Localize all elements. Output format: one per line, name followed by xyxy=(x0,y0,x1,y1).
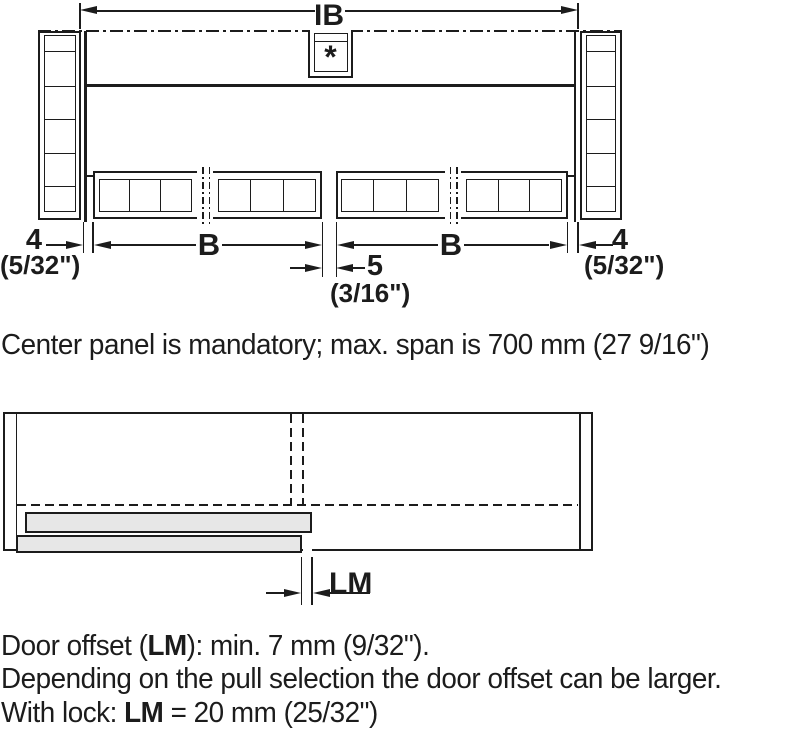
door-panel-a2-glazing xyxy=(218,179,316,212)
front-edge-right xyxy=(568,175,575,177)
door-break-line xyxy=(209,167,211,224)
panel-cell xyxy=(45,120,75,154)
ib-arrowhead-right-icon xyxy=(561,6,578,14)
door-cell xyxy=(529,180,561,211)
panel-cell xyxy=(587,52,615,87)
note-text: Door offset ( xyxy=(1,630,147,662)
ib-dim-line-left xyxy=(96,10,315,12)
panel-cell xyxy=(45,187,75,214)
center-gap-leader-left xyxy=(290,267,305,269)
door-panel-b2-glazing xyxy=(466,179,562,212)
lm-witness-line xyxy=(311,557,313,605)
center-panel: * xyxy=(314,33,348,72)
hidden-edge-line xyxy=(17,504,578,506)
door-cell xyxy=(498,180,530,211)
ib-dim-label: IB xyxy=(313,1,345,31)
front-sliding-door xyxy=(16,535,302,553)
door-cell xyxy=(219,180,250,211)
note-text: = 20 mm (25/32") xyxy=(163,697,377,729)
lm-witness-line xyxy=(301,557,303,605)
right-reveal-inch-label: (5/32") xyxy=(584,252,664,278)
b-left-arrowhead-icon xyxy=(305,241,322,249)
rear-sliding-door xyxy=(25,512,312,533)
panel-cell xyxy=(587,154,615,187)
panel-cell xyxy=(45,87,75,120)
b-right-arrowhead-icon xyxy=(550,241,567,249)
ib-arrowhead-left-icon xyxy=(80,6,97,14)
note-text: With lock: xyxy=(1,697,124,729)
ib-dim-line-right xyxy=(345,10,561,12)
b-right-dim-line xyxy=(353,244,438,246)
cabinet-left-wall xyxy=(84,31,87,222)
note-text: ): min. 7 mm (9/32"). xyxy=(187,630,430,662)
door-break-line xyxy=(450,167,452,224)
b-right-dim-label: B xyxy=(438,229,464,260)
door-cell xyxy=(467,180,498,211)
left-wall-inner-line xyxy=(16,414,18,536)
door-cell xyxy=(283,180,315,211)
door-cell xyxy=(160,180,191,211)
right-reveal-arrowhead-icon xyxy=(579,241,596,249)
lm-arrowhead-icon xyxy=(313,589,330,597)
door-cell xyxy=(406,180,438,211)
bottom-edge-notch xyxy=(303,549,312,555)
center-panel-hidden-line xyxy=(290,414,292,506)
b-left-dim-label: B xyxy=(196,229,222,260)
door-break-line xyxy=(202,167,204,224)
b-left-arrowhead-icon xyxy=(94,241,111,249)
lm-dim-label: LM xyxy=(329,569,373,599)
panel-cell xyxy=(45,36,75,52)
witness-line xyxy=(567,222,569,253)
lm-bold: LM xyxy=(147,630,186,662)
cabinet-right-wall xyxy=(574,31,577,222)
door-cell xyxy=(342,180,373,211)
center-gap-inch-label: (3/16") xyxy=(330,280,406,306)
center-gap-arrowhead-icon xyxy=(305,264,322,272)
center-gap-mm-label: 5 xyxy=(364,252,386,281)
door-cell xyxy=(250,180,282,211)
b-right-arrowhead-icon xyxy=(337,241,354,249)
center-gap-arrowhead-icon xyxy=(336,264,353,272)
cabinet-back-wall xyxy=(86,84,574,87)
b-right-dim-line xyxy=(464,244,549,246)
center-panel-marker: * xyxy=(315,42,347,72)
center-panel-hidden-line xyxy=(302,414,304,506)
door-offset-note-line3: With lock: LM = 20 mm (25/32") xyxy=(1,697,378,730)
center-panel-note: Center panel is mandatory; max. span is … xyxy=(1,329,709,362)
left-reveal-arrowhead-icon xyxy=(66,241,83,249)
b-left-dim-line xyxy=(222,244,305,246)
catalog-installation-figure: IB xyxy=(0,0,801,730)
door-offset-note-line1: Door offset (LM): min. 7 mm (9/32"). xyxy=(1,630,429,663)
panel-cell xyxy=(587,87,615,120)
door-cell xyxy=(129,180,160,211)
panel-cell xyxy=(587,187,615,214)
lm-leader-left xyxy=(266,592,284,594)
left-reveal-inch-label: (5/32") xyxy=(0,252,80,278)
panel-cell xyxy=(587,36,615,52)
lm-arrowhead-icon xyxy=(284,589,301,597)
door-break-line xyxy=(456,167,458,224)
left-reveal-leader xyxy=(46,244,68,246)
panel-cell xyxy=(45,154,75,187)
door-panel-b1-glazing xyxy=(341,179,439,212)
door-cell xyxy=(373,180,405,211)
left-side-panel-sections xyxy=(44,35,76,212)
panel-cell xyxy=(45,52,75,87)
door-panel-a1-glazing xyxy=(99,179,192,212)
door-cell xyxy=(100,180,130,211)
door-offset-note-line2: Depending on the pull selection the door… xyxy=(1,663,721,696)
right-side-panel-sections xyxy=(586,35,616,212)
b-left-dim-line xyxy=(111,244,196,246)
front-edge-left xyxy=(84,175,93,177)
panel-cell xyxy=(587,120,615,154)
lm-bold: LM xyxy=(124,697,163,729)
right-wall-inner-line xyxy=(579,414,581,549)
